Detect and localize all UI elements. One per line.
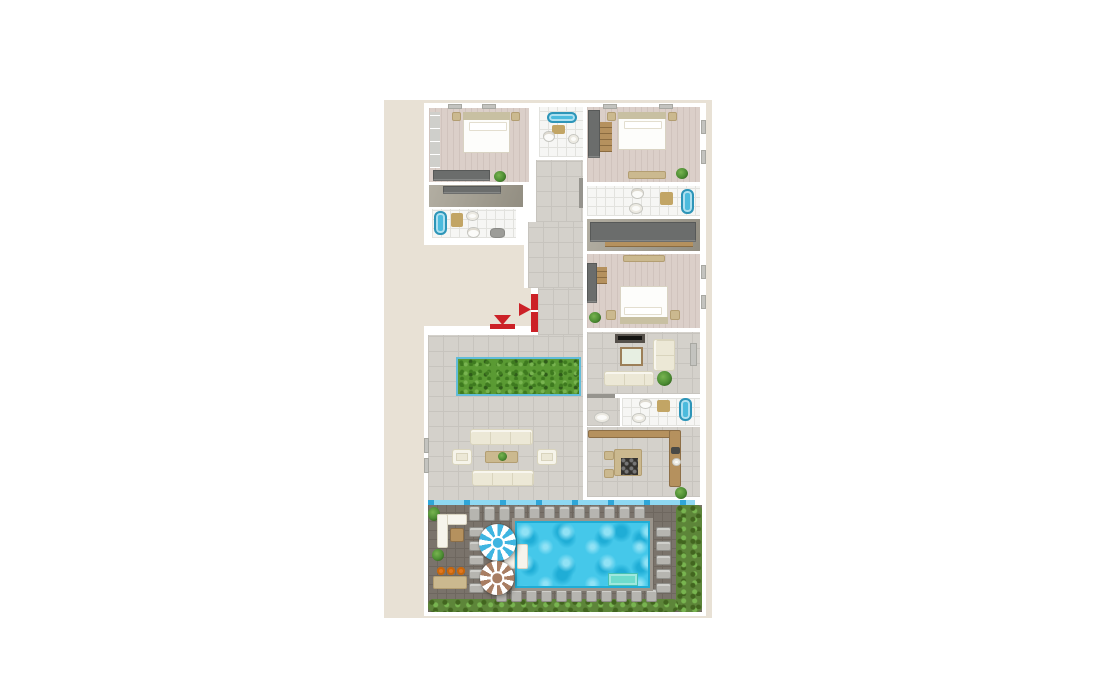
bar-stool bbox=[457, 567, 465, 575]
bathroom-1-sink bbox=[466, 211, 479, 221]
guest-bath-toilet bbox=[639, 399, 652, 409]
bathroom-1-ottoman bbox=[490, 228, 505, 238]
bedroom-2-nightstand bbox=[668, 112, 677, 121]
bedroom-2-nightstand bbox=[607, 112, 616, 121]
pool-lounger bbox=[656, 569, 671, 579]
kitchen-chair bbox=[604, 469, 614, 478]
bedroom-2-window bbox=[701, 150, 706, 164]
indoor-planter bbox=[456, 357, 581, 396]
bedroom-1-window bbox=[482, 104, 496, 109]
terrace-coffee-table bbox=[450, 528, 464, 542]
living-sofa bbox=[470, 429, 533, 445]
bedroom-2-window bbox=[659, 104, 673, 109]
bathroom-middle-toilet bbox=[543, 131, 555, 142]
pool-lounger bbox=[656, 527, 671, 537]
bar-stool bbox=[447, 567, 455, 575]
bedroom-3-wardrobe bbox=[587, 263, 597, 303]
terrace-bar bbox=[433, 576, 467, 589]
kitchen-chair bbox=[604, 451, 614, 460]
kitchen-plant bbox=[675, 487, 687, 499]
umbrella-blue bbox=[479, 524, 516, 561]
bathroom-right-bathtub bbox=[681, 189, 694, 214]
living-window bbox=[424, 438, 429, 453]
bedroom-2-dresser bbox=[628, 171, 666, 179]
bedroom-2-shelf bbox=[600, 122, 612, 152]
bedroom-1-window bbox=[448, 104, 462, 109]
living-armchair bbox=[537, 449, 557, 465]
kitchen-cooktop bbox=[621, 458, 638, 475]
closet-2-wardrobe bbox=[590, 222, 696, 242]
living-table-plant bbox=[498, 452, 507, 461]
pool-lounger bbox=[656, 541, 671, 551]
guest-bath-sink bbox=[632, 413, 646, 423]
bedroom-3-plant bbox=[589, 312, 601, 323]
terrace-hedge-right bbox=[676, 505, 702, 612]
bedroom-3-nightstand bbox=[670, 310, 680, 320]
pool-lounger bbox=[469, 506, 480, 521]
kitchen-sink bbox=[672, 458, 681, 466]
bedroom-1-wardrobe bbox=[430, 112, 440, 168]
floor-plan-stage bbox=[0, 0, 1096, 693]
bedroom-1-nightstand bbox=[452, 112, 461, 121]
bedroom-2-plant bbox=[676, 168, 688, 179]
guest-bath-mat bbox=[657, 400, 670, 412]
bedroom-3-window bbox=[701, 265, 706, 279]
living-sofa bbox=[472, 470, 534, 486]
corridor-wall-segment bbox=[579, 178, 583, 208]
bathroom-middle-bathtub bbox=[547, 112, 577, 123]
closet-2-bench bbox=[605, 242, 693, 247]
pool-steps bbox=[608, 573, 638, 586]
corridor-upper-floor bbox=[536, 160, 583, 222]
sun-lounger-white bbox=[517, 544, 528, 569]
bathroom-right-mat bbox=[660, 192, 673, 205]
bedroom-1-dresser bbox=[433, 170, 490, 181]
bedroom-3-bed bbox=[620, 286, 668, 324]
bedroom-2-wardrobe bbox=[588, 110, 600, 158]
corridor-entry-floor bbox=[538, 288, 583, 335]
bedroom-3-shelf bbox=[597, 267, 607, 284]
bedroom-3-dresser bbox=[623, 255, 665, 262]
guest-bath-bathtub bbox=[679, 398, 692, 421]
living-window bbox=[424, 458, 429, 473]
tv-window bbox=[690, 343, 697, 366]
pool-lounger bbox=[656, 555, 671, 565]
pool-lounger bbox=[469, 555, 484, 565]
bedroom-2-window bbox=[701, 120, 706, 134]
bar-stool bbox=[437, 567, 445, 575]
entry-door-leaf bbox=[531, 312, 538, 332]
guest-bath-wall bbox=[587, 394, 615, 398]
bathroom-1-bathtub bbox=[434, 211, 447, 235]
entry-door-leaf bbox=[531, 294, 538, 310]
bedroom-3-nightstand bbox=[606, 310, 616, 320]
glass-wall bbox=[428, 500, 695, 505]
bathroom-1-toilet bbox=[467, 227, 480, 238]
kitchen-stove bbox=[671, 447, 680, 454]
tv-side-sofa bbox=[653, 339, 675, 371]
corridor-main-floor bbox=[528, 222, 583, 288]
tv-sofa bbox=[604, 371, 654, 386]
bathroom-right-toilet bbox=[631, 188, 644, 199]
bedroom-1-plant bbox=[494, 171, 506, 182]
living-armchair bbox=[452, 449, 472, 465]
tv-screen bbox=[618, 336, 642, 340]
vestibule-sink bbox=[594, 412, 610, 423]
tv-plant bbox=[657, 371, 672, 386]
bedroom-1-bed bbox=[463, 112, 510, 153]
bathroom-middle-sink bbox=[568, 134, 579, 144]
pool-lounger bbox=[499, 506, 510, 521]
terrace-sofa bbox=[437, 514, 448, 548]
bathroom-1-mat bbox=[451, 213, 463, 227]
pool-lounger bbox=[656, 583, 671, 593]
kitchen-counter bbox=[588, 430, 680, 438]
umbrella-brown bbox=[480, 561, 514, 595]
bedroom-1-nightstand bbox=[511, 112, 520, 121]
pool-lounger bbox=[484, 506, 495, 521]
closet-1-wardrobe bbox=[443, 186, 501, 194]
bedroom-2-window bbox=[603, 104, 617, 109]
terrace-plant bbox=[432, 549, 444, 561]
bedroom-2-bed bbox=[618, 112, 666, 150]
bathroom-right-sink bbox=[629, 203, 643, 214]
tv-coffee-table bbox=[620, 347, 643, 366]
bedroom-3-window bbox=[701, 295, 706, 309]
